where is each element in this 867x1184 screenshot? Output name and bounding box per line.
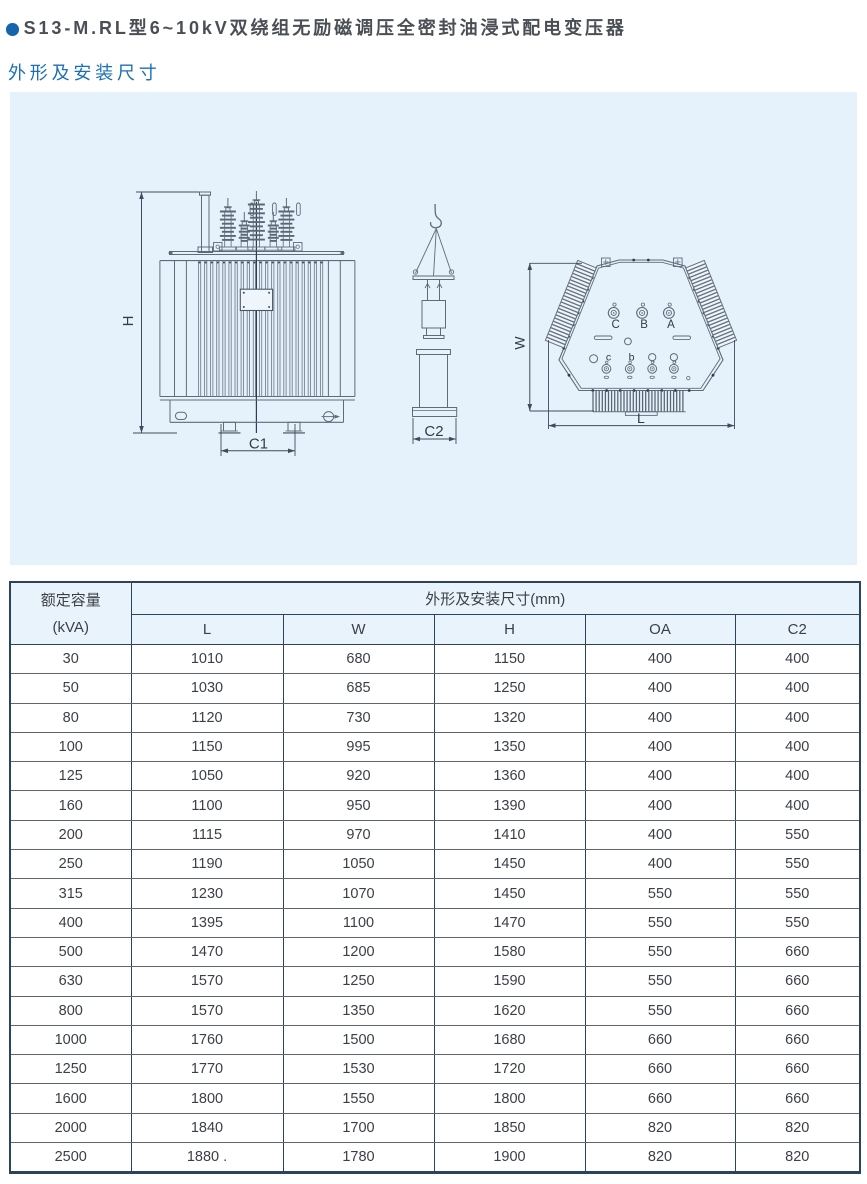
svg-text:H: H <box>120 316 137 327</box>
svg-text:B: B <box>640 319 648 331</box>
svg-text:W: W <box>512 336 528 350</box>
svg-text:b: b <box>629 352 635 364</box>
svg-text:C1: C1 <box>249 436 268 453</box>
svg-text:C: C <box>612 319 620 331</box>
svg-text:L: L <box>637 410 645 426</box>
svg-text:A: A <box>667 319 675 331</box>
svg-text:C2: C2 <box>424 423 443 440</box>
svg-text:c: c <box>606 352 611 364</box>
